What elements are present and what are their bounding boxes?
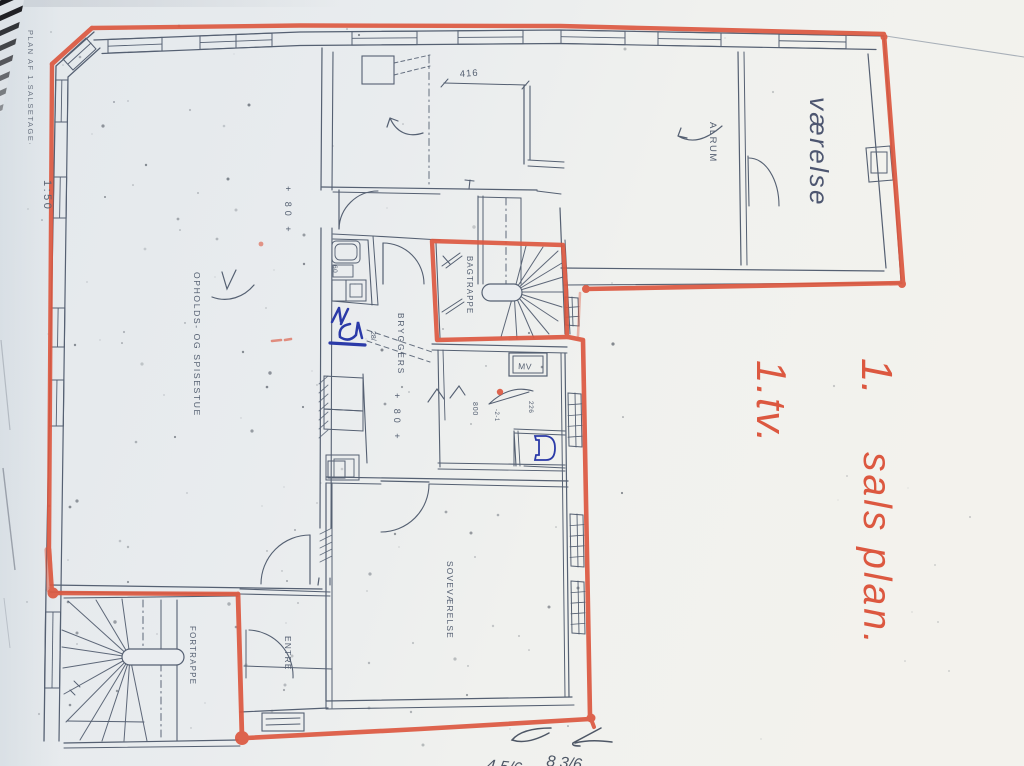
svg-text:FORTRAPPE: FORTRAPPE [188,626,197,685]
svg-text:60: 60 [331,265,338,273]
svg-text:sals plan.: sals plan. [855,452,898,647]
svg-text:PLAN AF 1.SALSETAGE·: PLAN AF 1.SALSETAGE· [26,30,35,146]
svg-text:ALRUM: ALRUM [707,122,718,163]
svg-text:-2-1: -2-1 [493,409,499,422]
svg-text:+ 80 +: + 80 + [392,393,402,443]
svg-text:1.tv.: 1.tv. [748,360,795,444]
svg-text:28/: 28/ [369,331,376,341]
svg-text:MV: MV [518,361,532,372]
svg-text:ENTRE: ENTRE [283,636,292,671]
svg-text:+ 80 +: + 80 + [283,186,293,236]
svg-text:OPHOLDS- OG SPISESTUE: OPHOLDS- OG SPISESTUE [192,272,202,417]
svg-text:SOVEVÆRELSE: SOVEVÆRELSE [445,561,455,639]
svg-text:800: 800 [471,402,478,416]
svg-text:226: 226 [527,401,534,413]
svg-text:416: 416 [459,68,479,80]
svg-text:BRYGGERS: BRYGGERS [396,313,405,375]
svg-text:værelse: værelse [804,97,834,207]
svg-text:1.: 1. [852,358,901,395]
svg-text:1:50: 1:50 [41,180,53,211]
svg-text:BAGTRAPPE: BAGTRAPPE [465,256,474,314]
